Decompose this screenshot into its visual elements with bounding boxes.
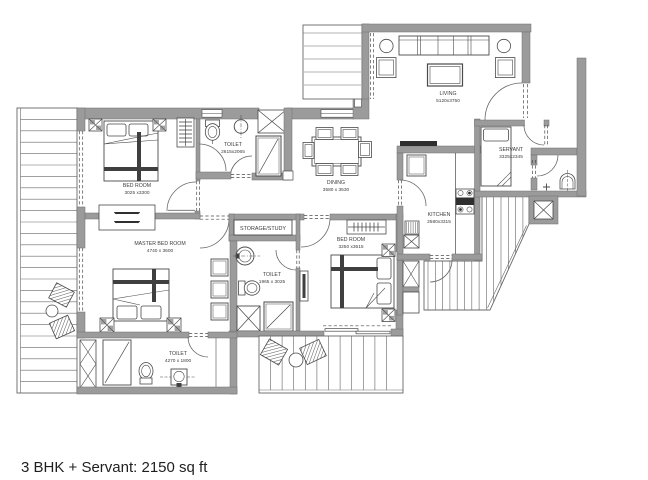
svg-text:2615x2065: 2615x2065	[221, 149, 245, 155]
svg-text:STORAGE/STUDY: STORAGE/STUDY	[240, 226, 286, 232]
svg-text:3 BHK + Servant: 2150 sq ft: 3 BHK + Servant: 2150 sq ft	[21, 459, 208, 476]
svg-text:LIVING: LIVING	[439, 91, 456, 97]
svg-text:3580 x 3530: 3580 x 3530	[323, 187, 350, 193]
svg-text:TOILET: TOILET	[263, 272, 282, 278]
svg-text:TOILET: TOILET	[224, 142, 243, 148]
svg-text:4270 x 1800: 4270 x 1800	[165, 358, 192, 364]
svg-text:3025 x3300: 3025 x3300	[124, 190, 149, 196]
svg-text:TOILET: TOILET	[169, 351, 188, 357]
svg-text:1965 x 3025: 1965 x 3025	[259, 279, 286, 285]
svg-text:2580x3315: 2580x3315	[427, 219, 451, 225]
svg-text:3325x2345: 3325x2345	[499, 154, 523, 160]
svg-text:SERVANT: SERVANT	[499, 147, 524, 153]
svg-text:3250 x3615: 3250 x3615	[338, 244, 363, 250]
svg-text:4740 x 3600: 4740 x 3600	[147, 248, 174, 254]
svg-text:BED ROOM: BED ROOM	[123, 183, 151, 189]
svg-text:MASTER BED ROOM: MASTER BED ROOM	[134, 241, 185, 247]
svg-text:BED ROOM: BED ROOM	[337, 237, 365, 243]
svg-text:DINING: DINING	[327, 180, 345, 186]
svg-text:KITCHEN: KITCHEN	[428, 212, 451, 218]
svg-text:5120x3750: 5120x3750	[436, 98, 460, 104]
